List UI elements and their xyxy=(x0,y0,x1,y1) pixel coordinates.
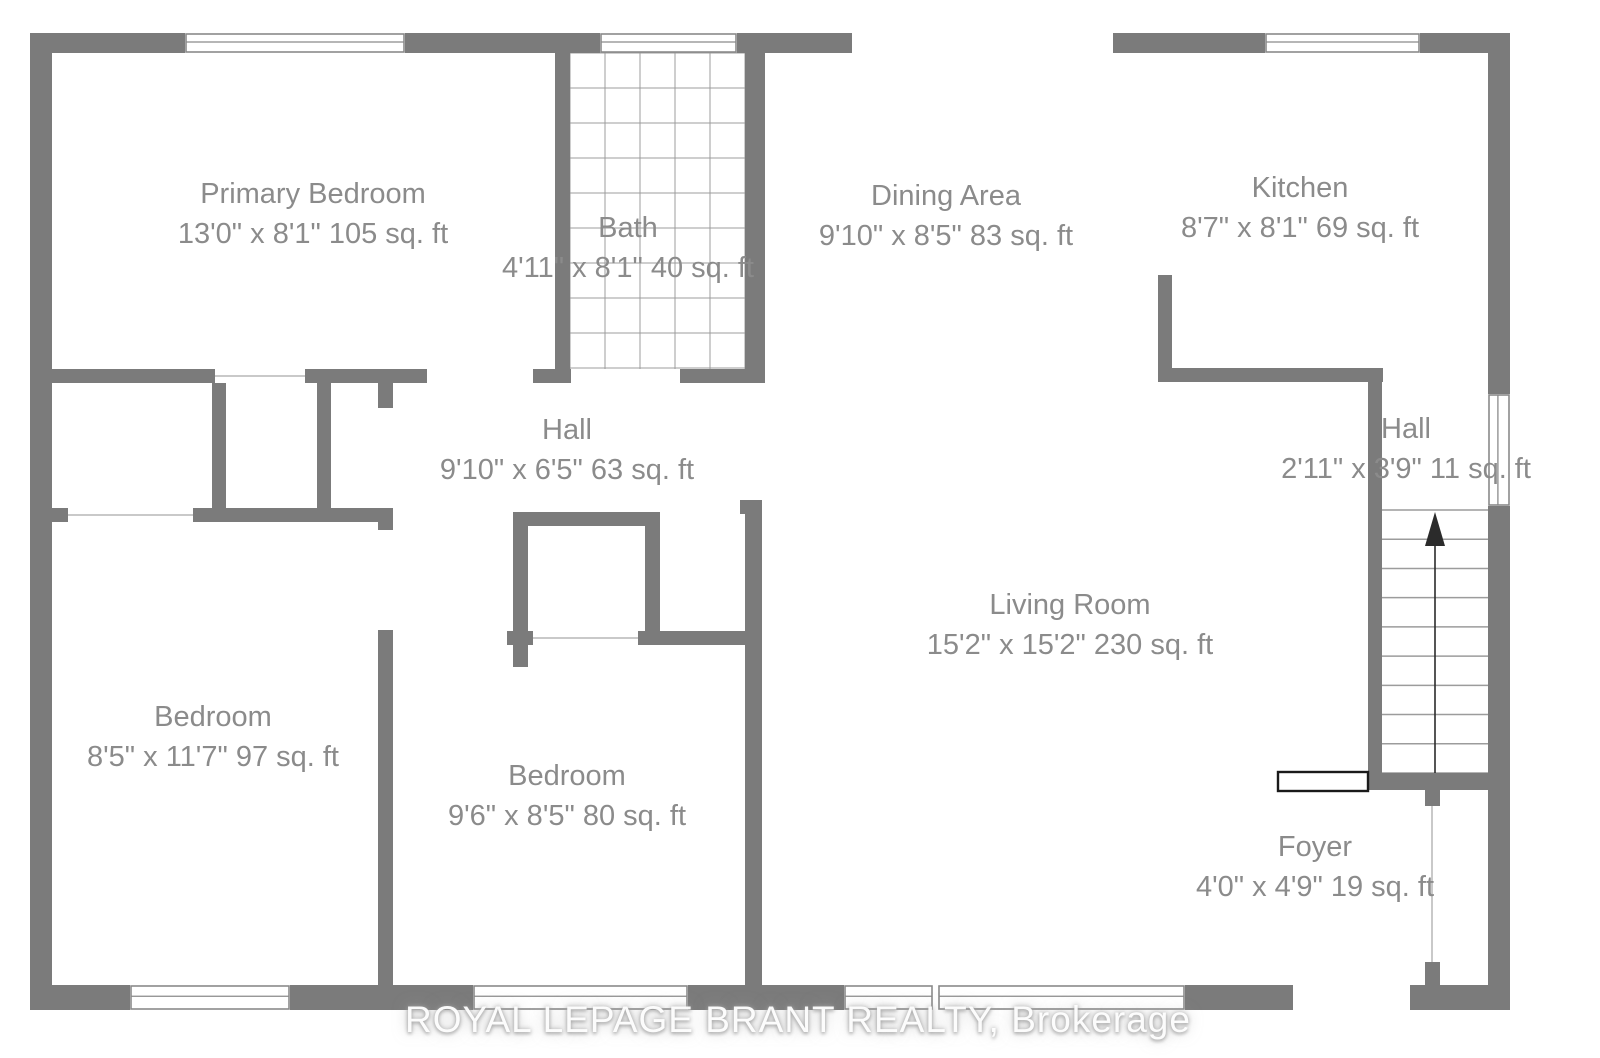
wall-segment xyxy=(378,508,393,530)
wall-segment xyxy=(1185,985,1293,1010)
room-dims: 4'0" x 4'9" 19 sq. ft xyxy=(1196,867,1434,907)
wall-segment xyxy=(745,514,762,985)
room-name: Kitchen xyxy=(1181,168,1419,208)
wall-segment xyxy=(1158,368,1383,382)
wall-segment xyxy=(52,508,68,522)
room-label-bedroom-left: Bedroom 8'5" x 11'7" 97 sq. ft xyxy=(87,697,339,777)
brokerage-watermark: ROYAL LEPAGE BRANT REALTY, Brokerage xyxy=(405,999,1191,1041)
wall-segment xyxy=(1425,962,1440,985)
room-label-dining-area: Dining Area 9'10" x 8'5" 83 sq. ft xyxy=(819,176,1073,256)
wall-segment xyxy=(507,631,533,645)
window-symbol xyxy=(601,34,736,52)
wall-segment xyxy=(737,33,852,53)
room-label-hall-center: Hall 9'10" x 6'5" 63 sq. ft xyxy=(440,410,694,490)
room-name: Bath xyxy=(502,208,754,248)
room-label-hall-upper: Hall 2'11" x 3'9" 11 sq. ft xyxy=(1281,409,1531,489)
wall-segment xyxy=(193,508,393,522)
room-dims: 8'5" x 11'7" 97 sq. ft xyxy=(87,737,339,777)
stair-railing xyxy=(1278,772,1368,791)
wall-segment xyxy=(30,985,130,1010)
room-name: Bedroom xyxy=(448,756,686,796)
window-symbol xyxy=(1266,34,1419,52)
wall-segment xyxy=(638,631,762,645)
room-label-bath: Bath 4'11" x 8'1" 40 sq. ft xyxy=(502,208,754,288)
room-dims: 15'2" x 15'2" 230 sq. ft xyxy=(927,625,1213,665)
wall-segment xyxy=(1488,33,1510,394)
wall-segment xyxy=(1425,790,1440,806)
wall-segment xyxy=(513,512,660,526)
room-dims: 8'7" x 8'1" 69 sq. ft xyxy=(1181,208,1419,248)
wall-segment xyxy=(405,33,600,53)
room-label-living-room: Living Room 15'2" x 15'2" 230 sq. ft xyxy=(927,585,1213,665)
room-label-primary-bedroom: Primary Bedroom 13'0" x 8'1" 105 sq. ft xyxy=(178,174,448,254)
room-dims: 4'11" x 8'1" 40 sq. ft xyxy=(502,248,754,288)
stairs-up-arrow-head xyxy=(1425,512,1445,546)
wall-segment xyxy=(52,369,215,383)
wall-segment xyxy=(378,383,393,408)
room-dims: 2'11" x 3'9" 11 sq. ft xyxy=(1281,449,1531,489)
room-name: Hall xyxy=(440,410,694,450)
wall-segment xyxy=(1488,506,1510,1010)
room-label-foyer: Foyer 4'0" x 4'9" 19 sq. ft xyxy=(1196,827,1434,907)
wall-segment xyxy=(378,630,393,985)
window-symbol xyxy=(186,34,404,52)
wall-segment xyxy=(513,512,528,645)
room-dims: 9'6" x 8'5" 80 sq. ft xyxy=(448,796,686,836)
room-name: Hall xyxy=(1281,409,1531,449)
wall-segment xyxy=(645,512,660,645)
wall-segment xyxy=(1113,33,1265,53)
wall-segment xyxy=(740,500,762,514)
room-name: Foyer xyxy=(1196,827,1434,867)
room-name: Living Room xyxy=(927,585,1213,625)
wall-segment xyxy=(305,369,427,383)
room-label-kitchen: Kitchen 8'7" x 8'1" 69 sq. ft xyxy=(1181,168,1419,248)
room-name: Dining Area xyxy=(819,176,1073,216)
wall-segment xyxy=(1158,275,1172,368)
floor-plan-page: Primary Bedroom 13'0" x 8'1" 105 sq. ft … xyxy=(0,0,1600,1058)
wall-segment xyxy=(30,33,52,1010)
room-name: Bedroom xyxy=(87,697,339,737)
room-dims: 9'10" x 8'5" 83 sq. ft xyxy=(819,216,1073,256)
wall-segment xyxy=(212,383,226,508)
wall-segment xyxy=(513,645,528,667)
wall-segment xyxy=(1410,985,1510,1010)
room-name: Primary Bedroom xyxy=(178,174,448,214)
room-label-bedroom-middle: Bedroom 9'6" x 8'5" 80 sq. ft xyxy=(448,756,686,836)
window-symbol xyxy=(131,986,289,1009)
room-dims: 13'0" x 8'1" 105 sq. ft xyxy=(178,214,448,254)
wall-segment xyxy=(317,383,331,508)
room-dims: 9'10" x 6'5" 63 sq. ft xyxy=(440,450,694,490)
wall-segment xyxy=(30,33,185,53)
wall-segment xyxy=(1368,773,1510,790)
